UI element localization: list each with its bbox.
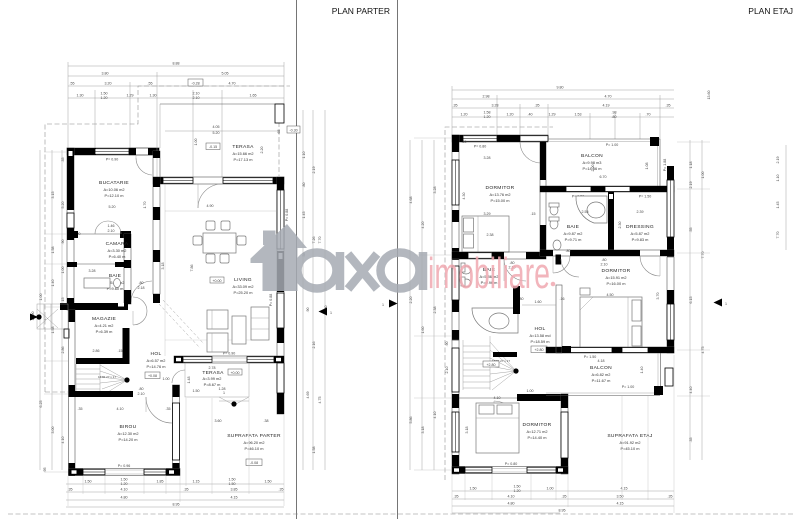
svg-text:A=6.82 m2: A=6.82 m2: [592, 372, 611, 377]
svg-text:.65: .65: [277, 130, 281, 135]
svg-text:1.20: 1.20: [514, 489, 521, 493]
svg-text:1.85: 1.85: [157, 480, 164, 484]
svg-text:6.15: 6.15: [689, 297, 693, 304]
svg-text:3.18: 3.18: [465, 427, 469, 434]
svg-text:2.86: 2.86: [93, 349, 100, 353]
svg-text:4.68: 4.68: [409, 197, 413, 204]
svg-text:SUPRAFATA PARTER: SUPRAFATA PARTER: [227, 433, 281, 439]
svg-text:DRESSING: DRESSING: [626, 224, 654, 230]
svg-text:imobiliare: imobiliare: [428, 249, 550, 298]
svg-text:3.50: 3.50: [617, 495, 624, 499]
svg-text:3.20: 3.20: [105, 82, 112, 86]
svg-text:1.48: 1.48: [187, 377, 191, 384]
svg-text:8.95: 8.95: [559, 509, 566, 513]
svg-text:3.28: 3.28: [433, 187, 437, 194]
svg-text:1.00: 1.00: [39, 294, 43, 301]
svg-text:1.50: 1.50: [121, 478, 128, 482]
svg-text:1.58: 1.58: [312, 447, 316, 454]
svg-text:.15: .15: [531, 212, 536, 216]
svg-text:4.18: 4.18: [598, 359, 605, 363]
svg-text:1.10: 1.10: [776, 175, 780, 182]
svg-text:8.95: 8.95: [173, 503, 180, 507]
svg-text:7.86: 7.86: [190, 265, 194, 272]
svg-text:2.10: 2.10: [445, 367, 449, 374]
svg-text:BALCON: BALCON: [581, 153, 603, 159]
svg-text:.35: .35: [562, 495, 567, 499]
svg-text:1.30: 1.30: [77, 94, 84, 98]
svg-text:4.10: 4.10: [433, 412, 437, 419]
svg-text:1.45: 1.45: [302, 212, 306, 219]
svg-text:4.10: 4.10: [494, 396, 501, 400]
svg-text:1.45: 1.45: [776, 202, 780, 209]
svg-text:.90: .90: [306, 308, 310, 313]
svg-text:P=9.71 m: P=9.71 m: [565, 237, 582, 242]
svg-text:1.18: 1.18: [689, 162, 693, 169]
svg-text:7.26: 7.26: [312, 237, 316, 244]
svg-text:BIROU: BIROU: [120, 424, 137, 430]
svg-text:.35: .35: [184, 488, 189, 492]
svg-text:6.25: 6.25: [39, 401, 43, 408]
svg-text:P=6.39 m: P=6.39 m: [96, 329, 113, 334]
svg-text:7.70: 7.70: [318, 237, 322, 244]
svg-text:2.20: 2.20: [409, 297, 413, 304]
svg-text:BALCON: BALCON: [590, 365, 612, 371]
svg-text:.80: .80: [566, 249, 571, 253]
svg-text:3.29: 3.29: [484, 212, 491, 216]
svg-text:4.80: 4.80: [508, 502, 515, 506]
svg-text:5.20: 5.20: [213, 131, 220, 135]
svg-text:.35: .35: [166, 407, 171, 411]
svg-text:P=16.00 m: P=16.00 m: [607, 281, 626, 286]
svg-text:BAIE: BAIE: [109, 273, 122, 279]
svg-text:.80: .80: [139, 387, 144, 391]
svg-text:A=13.76 m2: A=13.76 m2: [489, 192, 510, 197]
svg-text:2.38: 2.38: [487, 233, 494, 237]
svg-text:.35: .35: [666, 104, 671, 108]
svg-text:1.58: 1.58: [484, 111, 491, 115]
svg-text:P= 1.88: P= 1.88: [663, 159, 667, 172]
svg-text:1.00: 1.00: [61, 267, 65, 274]
svg-text:3.60: 3.60: [215, 419, 222, 423]
svg-text:DORMITOR: DORMITOR: [523, 422, 552, 428]
svg-text:1: 1: [44, 317, 46, 321]
svg-text:.35: .35: [535, 104, 540, 108]
svg-text:1.50: 1.50: [470, 487, 477, 491]
svg-text:2.20: 2.20: [260, 147, 264, 154]
svg-text:4.05: 4.05: [213, 125, 220, 129]
svg-text:1.20: 1.20: [484, 115, 491, 119]
svg-text:1: 1: [725, 302, 727, 306]
svg-text:P= 1.00: P= 1.00: [606, 143, 619, 147]
svg-text:1.50: 1.50: [193, 389, 200, 393]
svg-text:P=14.20 m: P=14.20 m: [119, 437, 138, 442]
svg-text:2.10: 2.10: [193, 96, 200, 100]
svg-text:1.00: 1.00: [527, 389, 534, 393]
svg-text:P=11.67 m: P=11.67 m: [592, 378, 611, 383]
svg-text:P=18.59 m: P=18.59 m: [531, 339, 550, 344]
svg-text:P= 0.80: P= 0.80: [505, 462, 518, 466]
svg-text:A=33.09 m2: A=33.09 m2: [232, 284, 253, 289]
svg-text:A=3.99 m2: A=3.99 m2: [203, 376, 222, 381]
svg-text:.98: .98: [612, 111, 617, 115]
svg-text:3.70: 3.70: [656, 293, 660, 300]
svg-text:-0.28: -0.28: [191, 82, 199, 86]
svg-text:A=9.87 m2: A=9.87 m2: [564, 231, 583, 236]
svg-text:16TR 27 x 17: 16TR 27 x 17: [98, 375, 116, 379]
svg-text:P= 1.00: P= 1.00: [622, 385, 635, 389]
svg-text:.35: .35: [689, 438, 693, 443]
svg-text:4.80: 4.80: [121, 496, 128, 500]
svg-text:A=96.20 m2: A=96.20 m2: [243, 440, 264, 445]
svg-text:.35: .35: [68, 488, 73, 492]
svg-text:-0.15: -0.15: [209, 145, 217, 149]
svg-text:A=4.21 m2: A=4.21 m2: [95, 323, 114, 328]
svg-text:.20: .20: [462, 140, 467, 144]
svg-text:1: 1: [223, 391, 225, 395]
svg-text:1.28: 1.28: [219, 387, 226, 391]
svg-text:1.60: 1.60: [535, 300, 542, 304]
svg-text:2.16: 2.16: [312, 342, 316, 349]
svg-text:2.19: 2.19: [312, 167, 316, 174]
svg-text:P=9.83 m: P=9.83 m: [632, 237, 649, 242]
svg-text:4.10: 4.10: [508, 495, 515, 499]
svg-text:3.18: 3.18: [421, 427, 425, 434]
svg-text:A=12.71 m2: A=12.71 m2: [526, 429, 547, 434]
svg-text:3.18: 3.18: [161, 263, 165, 270]
svg-text:-0.30: -0.30: [289, 129, 297, 133]
svg-text:.35: .35: [454, 495, 459, 499]
svg-text:1.00: 1.00: [547, 487, 554, 491]
svg-text:4.70: 4.70: [605, 95, 612, 99]
svg-text:.80: .80: [302, 183, 306, 188]
svg-text:1.30: 1.30: [150, 94, 157, 98]
svg-text:3.80: 3.80: [102, 72, 109, 76]
svg-text:4.70: 4.70: [229, 82, 236, 86]
svg-text:4.10: 4.10: [121, 488, 128, 492]
svg-text:3.28: 3.28: [484, 156, 491, 160]
svg-text:A=3.30 m2: A=3.30 m2: [108, 248, 127, 253]
svg-text:1.40: 1.40: [51, 280, 55, 287]
svg-text:A=9.98 m3: A=9.98 m3: [583, 160, 602, 165]
svg-text:+2.80: +2.80: [534, 348, 543, 352]
svg-text:13.60: 13.60: [707, 91, 711, 100]
svg-text:1.53: 1.53: [575, 113, 582, 117]
svg-text:1.50: 1.50: [101, 92, 108, 96]
svg-text:1.10: 1.10: [302, 152, 306, 159]
svg-text:2.86: 2.86: [61, 347, 65, 354]
svg-text:SUPRAFATA ETAJ: SUPRAFATA ETAJ: [607, 433, 652, 439]
svg-text:1.20: 1.20: [101, 96, 108, 100]
svg-text:.35: .35: [453, 104, 458, 108]
svg-text:A=10.06 m2: A=10.06 m2: [103, 187, 124, 192]
svg-text:9.80: 9.80: [557, 86, 564, 90]
svg-text:4.69: 4.69: [306, 392, 310, 399]
svg-text:3.28: 3.28: [492, 104, 499, 108]
svg-text:4.15: 4.15: [617, 502, 624, 506]
svg-text:.90: .90: [61, 240, 65, 245]
svg-text:.80: .80: [602, 258, 607, 262]
svg-text:P=15.00 m: P=15.00 m: [491, 198, 510, 203]
svg-text:+0.08: +0.08: [148, 374, 157, 378]
svg-text:1.40: 1.40: [640, 367, 644, 374]
svg-text:4.10: 4.10: [61, 437, 65, 444]
svg-text:P=12.10 m: P=12.10 m: [105, 193, 124, 198]
svg-text:-0.08: -0.08: [250, 461, 258, 465]
svg-text:PLAN ETAJ: PLAN ETAJ: [748, 6, 793, 16]
svg-text:2.18: 2.18: [138, 286, 145, 290]
svg-text:1.50: 1.50: [265, 480, 272, 484]
svg-text:.55: .55: [148, 82, 153, 86]
svg-text:A=15.91 m2: A=15.91 m2: [605, 275, 626, 280]
svg-text:.15: .15: [61, 298, 65, 303]
svg-text:BAIE: BAIE: [567, 224, 580, 230]
svg-text:2.39: 2.39: [637, 210, 644, 214]
svg-text:3.85: 3.85: [231, 488, 238, 492]
svg-text:2.38: 2.38: [433, 307, 437, 314]
svg-text:BUCATARIE: BUCATARIE: [99, 180, 129, 186]
svg-text:+0.00: +0.00: [230, 371, 239, 375]
svg-text:A=91.92 m2: A=91.92 m2: [619, 440, 640, 445]
svg-text:1.50: 1.50: [229, 478, 236, 482]
svg-text:.95: .95: [43, 468, 47, 473]
svg-text:A=15.66 m2: A=15.66 m2: [232, 151, 253, 156]
svg-text:3.00: 3.00: [51, 427, 55, 434]
svg-text:P= 1.50: P= 1.50: [584, 355, 597, 359]
svg-text:2.78: 2.78: [209, 366, 216, 370]
svg-text:.35: .35: [61, 158, 65, 163]
svg-text:1.58: 1.58: [51, 327, 55, 334]
svg-text:P= 0.88: P= 0.88: [285, 209, 289, 222]
svg-text:2.30: 2.30: [618, 222, 622, 229]
svg-text:1.65: 1.65: [250, 94, 257, 98]
svg-text:4.15: 4.15: [231, 496, 238, 500]
svg-text:.55: .55: [689, 228, 693, 233]
svg-text:.80: .80: [139, 281, 144, 285]
svg-text:1.00: 1.00: [163, 377, 170, 381]
svg-text:1.70: 1.70: [143, 202, 147, 209]
svg-text:7.70: 7.70: [776, 232, 780, 239]
svg-text:.38: .38: [264, 419, 269, 423]
svg-text:2.55: 2.55: [582, 210, 589, 214]
svg-text:5.86: 5.86: [409, 417, 413, 424]
svg-text:A=12.30 m2: A=12.30 m2: [117, 431, 138, 436]
svg-text:P= 0.96: P= 0.96: [118, 464, 131, 468]
svg-text:4.19: 4.19: [603, 104, 610, 108]
svg-text:.35: .35: [668, 495, 673, 499]
svg-text:P=14.76 m: P=14.76 m: [147, 364, 166, 369]
svg-text:LIVING: LIVING: [234, 277, 252, 283]
svg-text:.90: .90: [445, 342, 449, 347]
svg-text:A=13.58 md: A=13.58 md: [529, 333, 550, 338]
svg-text:.40: .40: [528, 113, 533, 117]
svg-text:CAMARA: CAMARA: [106, 241, 129, 247]
svg-text:1.50: 1.50: [85, 480, 92, 484]
svg-text:P=17.13 m: P=17.13 m: [234, 157, 253, 162]
svg-text:2.10: 2.10: [601, 263, 608, 267]
svg-text:.80: .80: [612, 115, 617, 119]
svg-text:4.20: 4.20: [421, 222, 425, 229]
svg-text:4.75: 4.75: [318, 397, 322, 404]
svg-text:4.10: 4.10: [117, 407, 124, 411]
svg-text:2.98: 2.98: [483, 95, 490, 99]
svg-text:HOL: HOL: [151, 351, 162, 357]
svg-text:2.19: 2.19: [776, 157, 780, 164]
svg-text:HOL: HOL: [535, 326, 546, 332]
svg-text:+2.80: +2.80: [486, 363, 495, 367]
svg-text:1.29: 1.29: [127, 94, 134, 98]
svg-text:+0.00: +0.00: [212, 279, 221, 283]
svg-text:P= 0.90: P= 0.90: [106, 158, 119, 162]
svg-text:1.00: 1.00: [701, 172, 705, 179]
svg-text:4.90: 4.90: [207, 204, 214, 208]
svg-text:DORMITOR: DORMITOR: [486, 185, 515, 191]
svg-text:.55: .55: [70, 82, 75, 86]
svg-text:7.70: 7.70: [701, 252, 705, 259]
svg-text:1.60: 1.60: [421, 327, 425, 334]
svg-text:MAGAZIE: MAGAZIE: [92, 316, 117, 322]
svg-text:1.50: 1.50: [514, 485, 521, 489]
svg-text:PLAN PARTER: PLAN PARTER: [332, 6, 390, 16]
svg-text:P= 0.80: P= 0.80: [474, 145, 487, 149]
svg-text:1.20: 1.20: [507, 113, 514, 117]
svg-text:P=14.40 m: P=14.40 m: [528, 435, 547, 440]
svg-text:1.08: 1.08: [645, 163, 649, 170]
svg-text:P=45.10 m: P=45.10 m: [621, 446, 640, 451]
svg-text:1.15: 1.15: [193, 480, 200, 484]
svg-text:2.19: 2.19: [689, 182, 693, 189]
svg-text:P= 1.50: P= 1.50: [639, 195, 652, 199]
svg-text:4.15: 4.15: [621, 487, 628, 491]
svg-text:1.00: 1.00: [194, 139, 198, 146]
svg-text:8.88: 8.88: [173, 62, 180, 66]
svg-text:3.28: 3.28: [89, 269, 96, 273]
svg-text:A=5.87 m2: A=5.87 m2: [631, 231, 650, 236]
svg-text:3.15: 3.15: [51, 192, 55, 199]
svg-text:1: 1: [330, 311, 332, 315]
svg-text:1.20: 1.20: [121, 482, 128, 486]
svg-text:2.10: 2.10: [138, 392, 145, 396]
svg-text:4.40: 4.40: [689, 387, 693, 394]
svg-text:6.70: 6.70: [600, 175, 607, 179]
svg-text:2.00: 2.00: [591, 165, 595, 172]
svg-text:5.20: 5.20: [109, 205, 116, 209]
svg-text:1.29: 1.29: [549, 113, 556, 117]
svg-text:1.58: 1.58: [51, 247, 55, 254]
svg-text:.15: .15: [118, 349, 123, 353]
svg-text:4.50: 4.50: [607, 293, 614, 297]
svg-text:1.46: 1.46: [108, 224, 115, 228]
svg-text:TERASA: TERASA: [232, 144, 254, 150]
svg-text:.70: .70: [646, 113, 651, 117]
svg-text:1.50: 1.50: [229, 482, 236, 486]
svg-text:4.30: 4.30: [462, 193, 466, 200]
svg-text:P=46.10 m: P=46.10 m: [245, 446, 264, 451]
svg-text:5.20: 5.20: [61, 202, 65, 209]
svg-text:DORMITOR: DORMITOR: [602, 268, 631, 274]
svg-text:2.10: 2.10: [193, 92, 200, 96]
svg-text:1: 1: [382, 303, 384, 307]
svg-text:5.05: 5.05: [222, 72, 229, 76]
svg-text:2.10: 2.10: [108, 229, 115, 233]
svg-text:.35: .35: [78, 407, 83, 411]
svg-text:P= 0.88: P= 0.88: [269, 294, 273, 307]
svg-text:A=6.57 m2: A=6.57 m2: [147, 358, 166, 363]
svg-text:P=6.40 m: P=6.40 m: [109, 254, 126, 259]
svg-text:P=25.20 m: P=25.20 m: [234, 290, 253, 295]
svg-text:1.20: 1.20: [461, 113, 468, 117]
svg-text:.35: .35: [279, 488, 284, 492]
